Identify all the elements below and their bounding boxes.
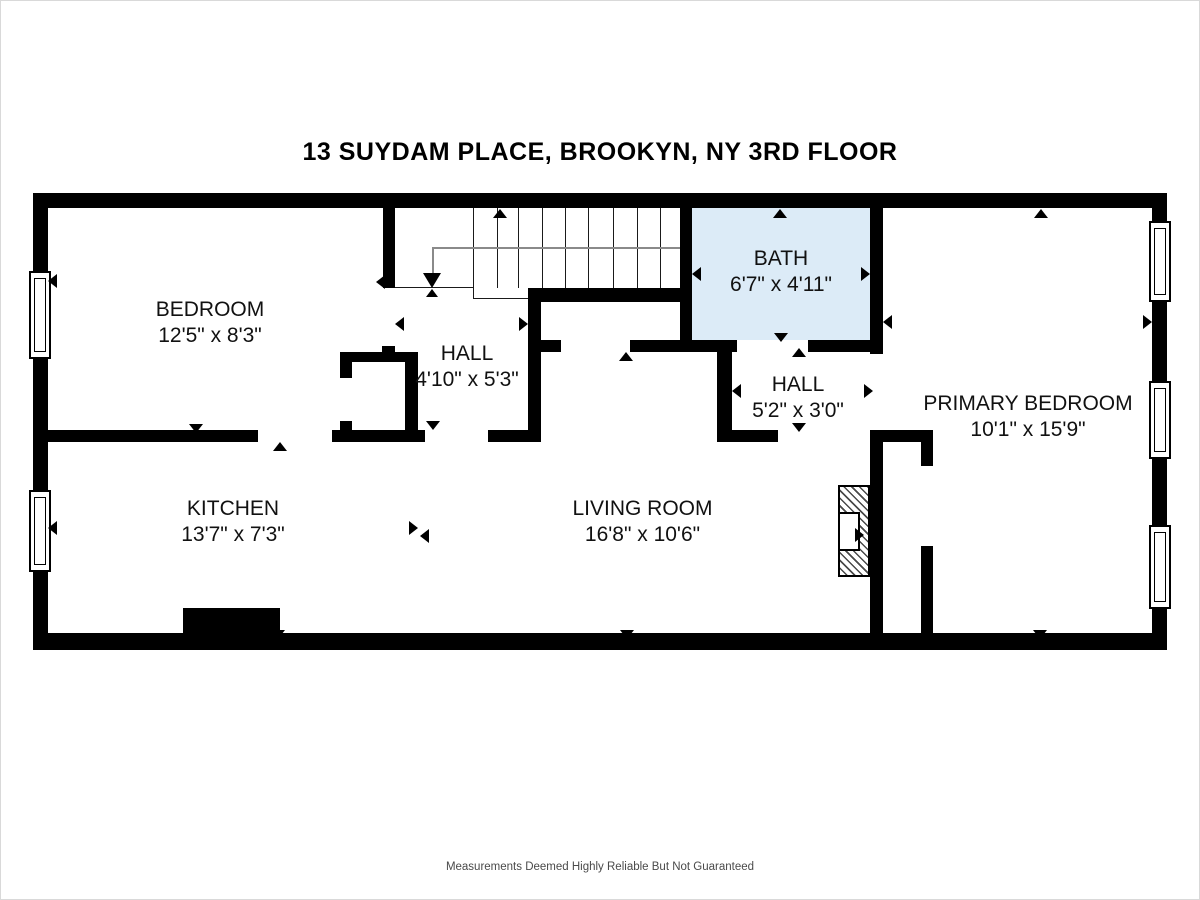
marker-kitchen-left-icon [48, 521, 57, 535]
wall-outer-top [33, 193, 1167, 208]
marker-hall-upper-right-icon [519, 317, 528, 331]
wall-divider-c [488, 430, 541, 442]
marker-kitchen-top-icon [273, 442, 287, 451]
marker-bedroom-left-icon [48, 274, 57, 288]
wall-primary-left-lower [870, 430, 883, 635]
room-dimensions: 4'10" x 5'3" [392, 367, 542, 393]
marker-hall-upper-left-icon [395, 317, 404, 331]
wall-divider-a [48, 430, 258, 442]
room-label-kitchen: KITCHEN 13'7" x 7'3" [118, 496, 348, 548]
wall-stairwell-left [383, 193, 395, 288]
marker-bedroom-top-icon [493, 209, 507, 218]
room-name: BEDROOM [95, 297, 325, 323]
stair-step-notch-h [473, 298, 528, 299]
wall-outer-bottom [33, 633, 1167, 650]
marker-bath-top-icon [773, 209, 787, 218]
wall-primary-closet-right-upper [921, 442, 933, 466]
window-primary-right-3 [1149, 525, 1171, 609]
marker-living-bottom-icon [620, 630, 634, 639]
plan-title: 13 SUYDAM PLACE, BROOKYN, NY 3RD FLOOR [0, 138, 1200, 167]
marker-living-top-icon [619, 352, 633, 361]
marker-living-right-icon [855, 528, 864, 542]
marker-kitchen-bottom-icon [271, 630, 285, 639]
marker-primary-left-icon [883, 315, 892, 329]
room-dimensions: 10'1" x 15'9" [896, 417, 1160, 443]
room-dimensions: 16'8" x 10'6" [520, 522, 765, 548]
room-label-hall-lower: HALL 5'2" x 3'0" [716, 372, 880, 424]
disclaimer-text: Measurements Deemed Highly Reliable But … [0, 861, 1200, 873]
marker-hall-lower-bottom-icon [792, 423, 806, 432]
room-label-living-room: LIVING ROOM 16'8" x 10'6" [520, 496, 765, 548]
wall-closet-left-lower [340, 421, 352, 442]
room-dimensions: 5'2" x 3'0" [716, 398, 880, 424]
marker-primary-right-icon [1143, 315, 1152, 329]
room-dimensions: 6'7" x 4'11" [694, 272, 868, 298]
marker-kitchen-right-icon [409, 521, 418, 535]
room-label-primary-bedroom: PRIMARY BEDROOM 10'1" x 15'9" [896, 391, 1160, 443]
window-pane [1154, 532, 1166, 602]
wall-outer-left [33, 193, 48, 650]
room-label-bath: BATH 6'7" x 4'11" [694, 246, 868, 298]
marker-bath-bottom-icon [774, 333, 788, 342]
window-primary-right-1 [1149, 221, 1171, 302]
marker-hall-lower-top-icon [792, 348, 806, 357]
room-dimensions: 13'7" x 7'3" [118, 522, 348, 548]
marker-primary-top-icon [1034, 209, 1048, 218]
room-name: HALL [716, 372, 880, 398]
marker-bedroom-bottom-icon [189, 424, 203, 433]
window-pane [34, 278, 46, 352]
wall-hall-lower-bottom [717, 430, 778, 442]
floor-plan-page: 13 SUYDAM PLACE, BROOKYN, NY 3RD FLOOR [0, 0, 1200, 900]
stair-direction-arrow-mirror-icon [426, 289, 438, 297]
stair-direction-line-h [432, 247, 680, 249]
room-name: HALL [392, 341, 542, 367]
marker-primary-bottom-icon [1033, 630, 1047, 639]
window-pane [34, 497, 46, 565]
marker-hall-upper-bottom-icon [426, 421, 440, 430]
room-name: KITCHEN [118, 496, 348, 522]
chimney-bump [183, 608, 280, 635]
room-name: PRIMARY BEDROOM [896, 391, 1160, 417]
wall-under-stairs [528, 288, 692, 302]
marker-living-left-icon [420, 529, 429, 543]
room-dimensions: 12'5" x 8'3" [95, 323, 325, 349]
window-pane [1154, 228, 1166, 295]
room-name: BATH [694, 246, 868, 272]
wall-primary-closet-right-lower [921, 546, 933, 635]
room-label-hall-upper: HALL 4'10" x 5'3" [392, 341, 542, 393]
room-name: LIVING ROOM [520, 496, 765, 522]
wall-closet-left-upper [340, 352, 352, 378]
stair-direction-arrow-icon [423, 273, 441, 288]
wall-bath-left [680, 208, 692, 352]
wall-bath-right [870, 208, 883, 354]
room-label-bedroom: BEDROOM 12'5" x 8'3" [95, 297, 325, 349]
marker-bedroom-right-icon [376, 275, 385, 289]
